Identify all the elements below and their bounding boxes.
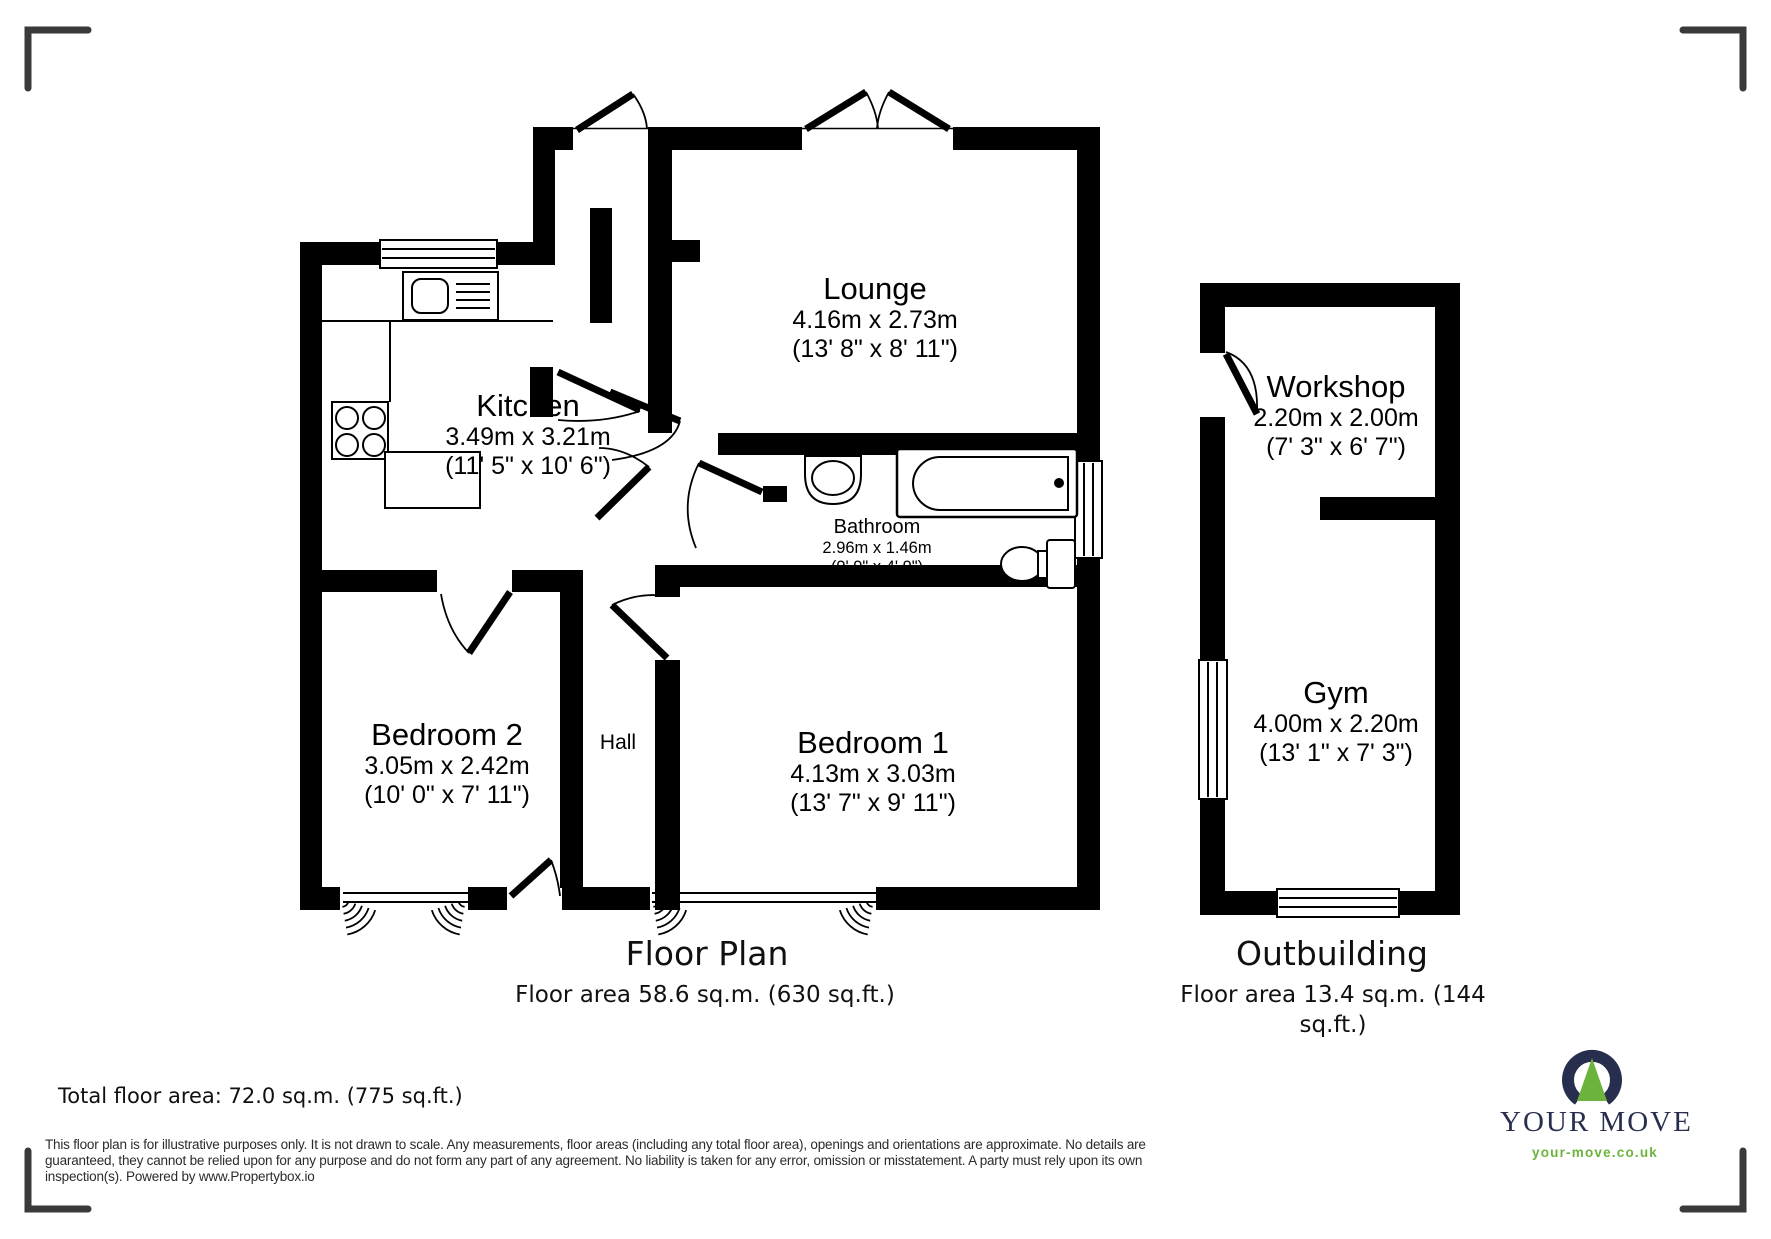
hob — [332, 402, 388, 459]
floor-plan-area-caption: Floor area 58.6 sq.m. (630 sq.ft.) — [515, 980, 895, 1010]
room-name: Bathroom — [822, 516, 931, 539]
room-metric: 2.20m x 2.00m — [1253, 404, 1418, 433]
gym-bottom-window — [1277, 889, 1399, 917]
disclaimer-line1: This floor plan is for illustrative purp… — [45, 1137, 1146, 1153]
room-imperial: (10' 0" x 7' 11") — [364, 781, 530, 810]
room-metric: 4.13m x 3.03m — [790, 760, 956, 789]
room-label-kitchen: Kitchen 3.49m x 3.21m (11' 5" x 10' 6") — [445, 389, 611, 481]
bathtub — [897, 449, 1077, 517]
disclaimer-text: This floor plan is for illustrative purp… — [45, 1137, 1146, 1185]
room-name: Kitchen — [445, 389, 611, 423]
room-imperial: (11' 5" x 10' 6") — [445, 452, 611, 481]
kitchen-window — [380, 240, 497, 268]
disclaimer-line2: guaranteed, they cannot be relied upon f… — [45, 1153, 1146, 1169]
corner-marks — [28, 30, 1743, 1209]
room-label-gym: Gym 4.00m x 2.20m (13' 1" x 7' 3") — [1253, 676, 1418, 768]
basin — [805, 456, 861, 504]
outbuilding-title: Outbuilding — [1236, 934, 1428, 973]
room-metric: 4.16m x 2.73m — [792, 306, 958, 335]
front-door — [577, 94, 647, 130]
outbuilding-area-line1: Floor area 13.4 sq.m. (144 — [1180, 980, 1485, 1010]
room-imperial: (13' 1" x 7' 3") — [1253, 739, 1418, 768]
room-imperial: (7' 3" x 6' 7") — [1253, 433, 1418, 462]
total-floor-area: Total floor area: 72.0 sq.m. (775 sq.ft.… — [58, 1084, 463, 1108]
your-move-logo: YOUR MOVE your-move.co.uk — [1500, 1040, 1690, 1160]
room-imperial: (13' 8" x 8' 11") — [792, 335, 958, 364]
disclaimer-line3: inspection(s). Powered by www.Propertybo… — [45, 1169, 1146, 1185]
room-label-hall: Hall — [600, 731, 636, 755]
room-name: Bedroom 1 — [790, 726, 956, 760]
logo-website-text: your-move.co.uk — [1500, 1145, 1690, 1160]
room-name: Workshop — [1253, 370, 1418, 404]
room-metric: 3.05m x 2.42m — [364, 752, 530, 781]
bathroom-door — [688, 463, 762, 548]
floorplan-page: Lounge 4.16m x 2.73m (13' 8" x 8' 11") K… — [0, 0, 1771, 1239]
floor-plan-title: Floor Plan — [626, 934, 789, 973]
room-name: Bedroom 2 — [364, 718, 530, 752]
room-imperial: (13' 7" x 9' 11") — [790, 789, 956, 818]
lounge-double-doors — [806, 92, 949, 129]
room-label-bedroom1: Bedroom 1 4.13m x 3.03m (13' 7" x 9' 11"… — [790, 726, 956, 818]
logo-brand-text: YOUR MOVE — [1500, 1106, 1690, 1139]
bedroom2-door — [441, 592, 510, 653]
room-label-lounge: Lounge 4.16m x 2.73m (13' 8" x 8' 11") — [792, 272, 958, 364]
bedroom2-exterior-door — [511, 860, 560, 896]
room-label-bedroom2: Bedroom 2 3.05m x 2.42m (10' 0" x 7' 11"… — [364, 718, 530, 810]
outbuilding-area-caption: Floor area 13.4 sq.m. (144 sq.ft.) — [1180, 980, 1485, 1040]
sink-bowl — [412, 279, 448, 313]
room-metric: 4.00m x 2.20m — [1253, 710, 1418, 739]
outbuilding-area-line2: sq.ft.) — [1180, 1010, 1485, 1040]
room-metric: 3.49m x 3.21m — [445, 423, 611, 452]
bathroom-window — [1075, 461, 1102, 558]
room-metric: 2.96m x 1.46m — [822, 539, 931, 558]
room-label-bathroom: Bathroom 2.96m x 1.46m (9' 9" x 4' 9") — [822, 516, 931, 577]
gym-side-window — [1199, 660, 1227, 799]
bedroom1-door — [612, 595, 667, 658]
room-imperial: (9' 9" x 4' 9") — [822, 558, 931, 577]
room-name: Gym — [1253, 676, 1418, 710]
room-name: Lounge — [792, 272, 958, 306]
room-label-workshop: Workshop 2.20m x 2.00m (7' 3" x 6' 7") — [1253, 370, 1418, 462]
